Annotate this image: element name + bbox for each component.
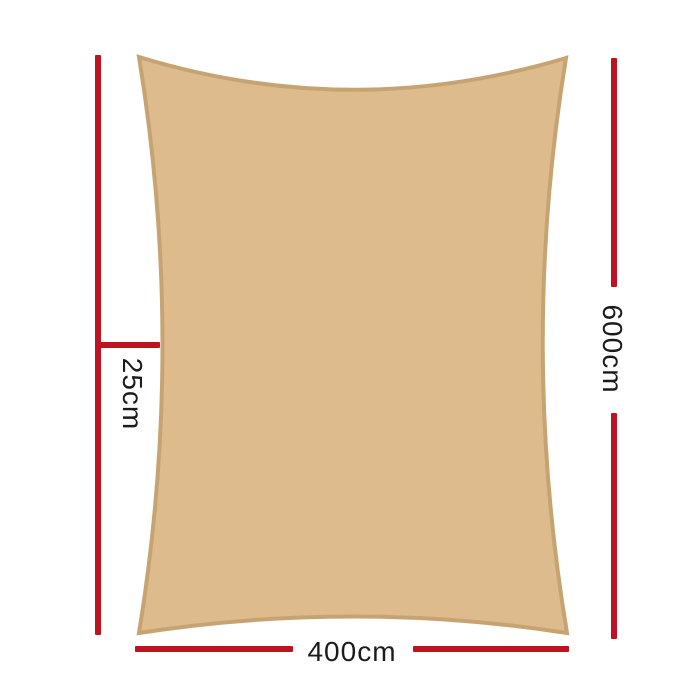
height-label-600cm: 600cm bbox=[598, 304, 626, 393]
dimension-diagram bbox=[0, 0, 700, 700]
diagram-canvas: 25cm 600cm 400cm bbox=[0, 0, 700, 700]
width-label-400cm: 400cm bbox=[307, 638, 396, 666]
right-dimension-line-bottom bbox=[611, 413, 617, 639]
shade-sail-shape bbox=[139, 57, 567, 633]
bottom-dimension-line-left bbox=[135, 646, 293, 652]
offset-label-25cm: 25cm bbox=[118, 358, 146, 430]
right-dimension-line-top bbox=[611, 58, 617, 287]
bottom-dimension-line-right bbox=[413, 646, 569, 652]
left-dimension-tick bbox=[98, 342, 160, 348]
